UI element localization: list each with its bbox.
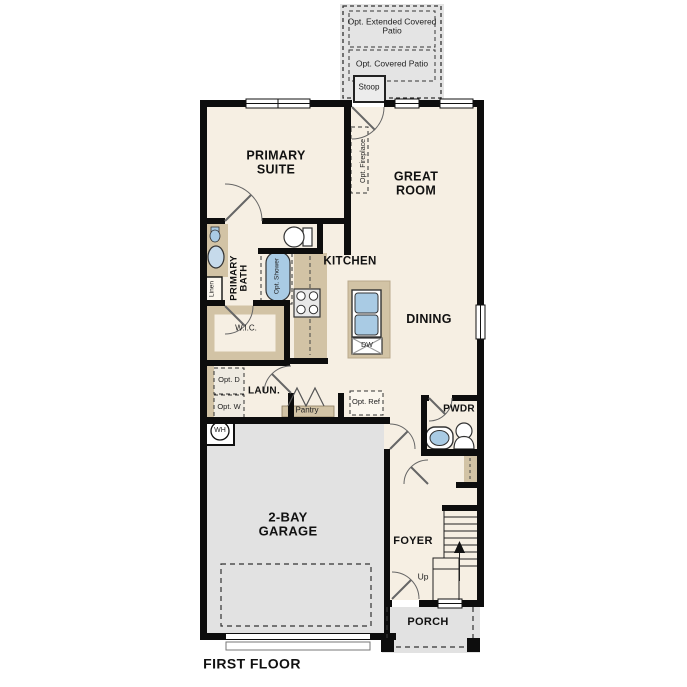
floor-plan: Opt. Extended Covered Patio Opt. Covered… [0,0,687,687]
kitchen-label: KITCHEN [310,256,390,269]
opt-extended-patio-label: Opt. Extended Covered Patio [344,18,440,37]
pantry-label: Pantry [282,407,332,416]
opt-washer-label: Opt. W [216,403,242,411]
floor-plan-drawing [0,0,687,687]
stoop-label: Stoop [349,84,389,93]
wic-label: W.I.C. [221,325,271,334]
garage-door-opening [226,634,370,639]
great-room-label: GREAT ROOM [381,170,451,198]
bath-sink-icon [208,246,224,268]
opt-dryer-label: Opt. D [216,376,242,384]
stairs-up-label: Up [411,572,435,581]
porch-post [381,638,394,652]
dishwasher-label: DW [352,342,382,350]
primary-suite-label: PRIMARY SUITE [234,149,318,177]
bath-faucet-icon [210,227,220,242]
opt-fireplace-label: Opt. Fireplace [360,139,368,183]
laundry-shelf [206,366,214,417]
water-heater-label: WH [208,427,232,435]
toilet-icon [284,227,312,247]
porch-floor [382,607,480,653]
porch-post [467,638,480,652]
opt-refrigerator-label: Opt. Ref [352,398,380,406]
laundry-label: LAUN. [239,386,289,397]
dining-label: DINING [394,313,464,327]
primary-bath-label: PRIMARY BATH [230,248,251,308]
porch-label: PORCH [398,616,458,628]
powder-room-label: PWDR [434,404,484,415]
linen-label: Linen [208,281,215,297]
island-sink-icon [352,290,381,337]
foyer-label: FOYER [383,535,443,547]
page-title: FIRST FLOOR [172,656,332,671]
opt-shower-label: Opt. Shower [273,256,280,296]
powder-sink-icon [426,427,453,449]
opt-covered-patio-label: Opt. Covered Patio [332,59,452,68]
garage-label: 2-BAY GARAGE [242,511,334,540]
range-icon [294,289,320,317]
garage-apron [226,642,370,650]
